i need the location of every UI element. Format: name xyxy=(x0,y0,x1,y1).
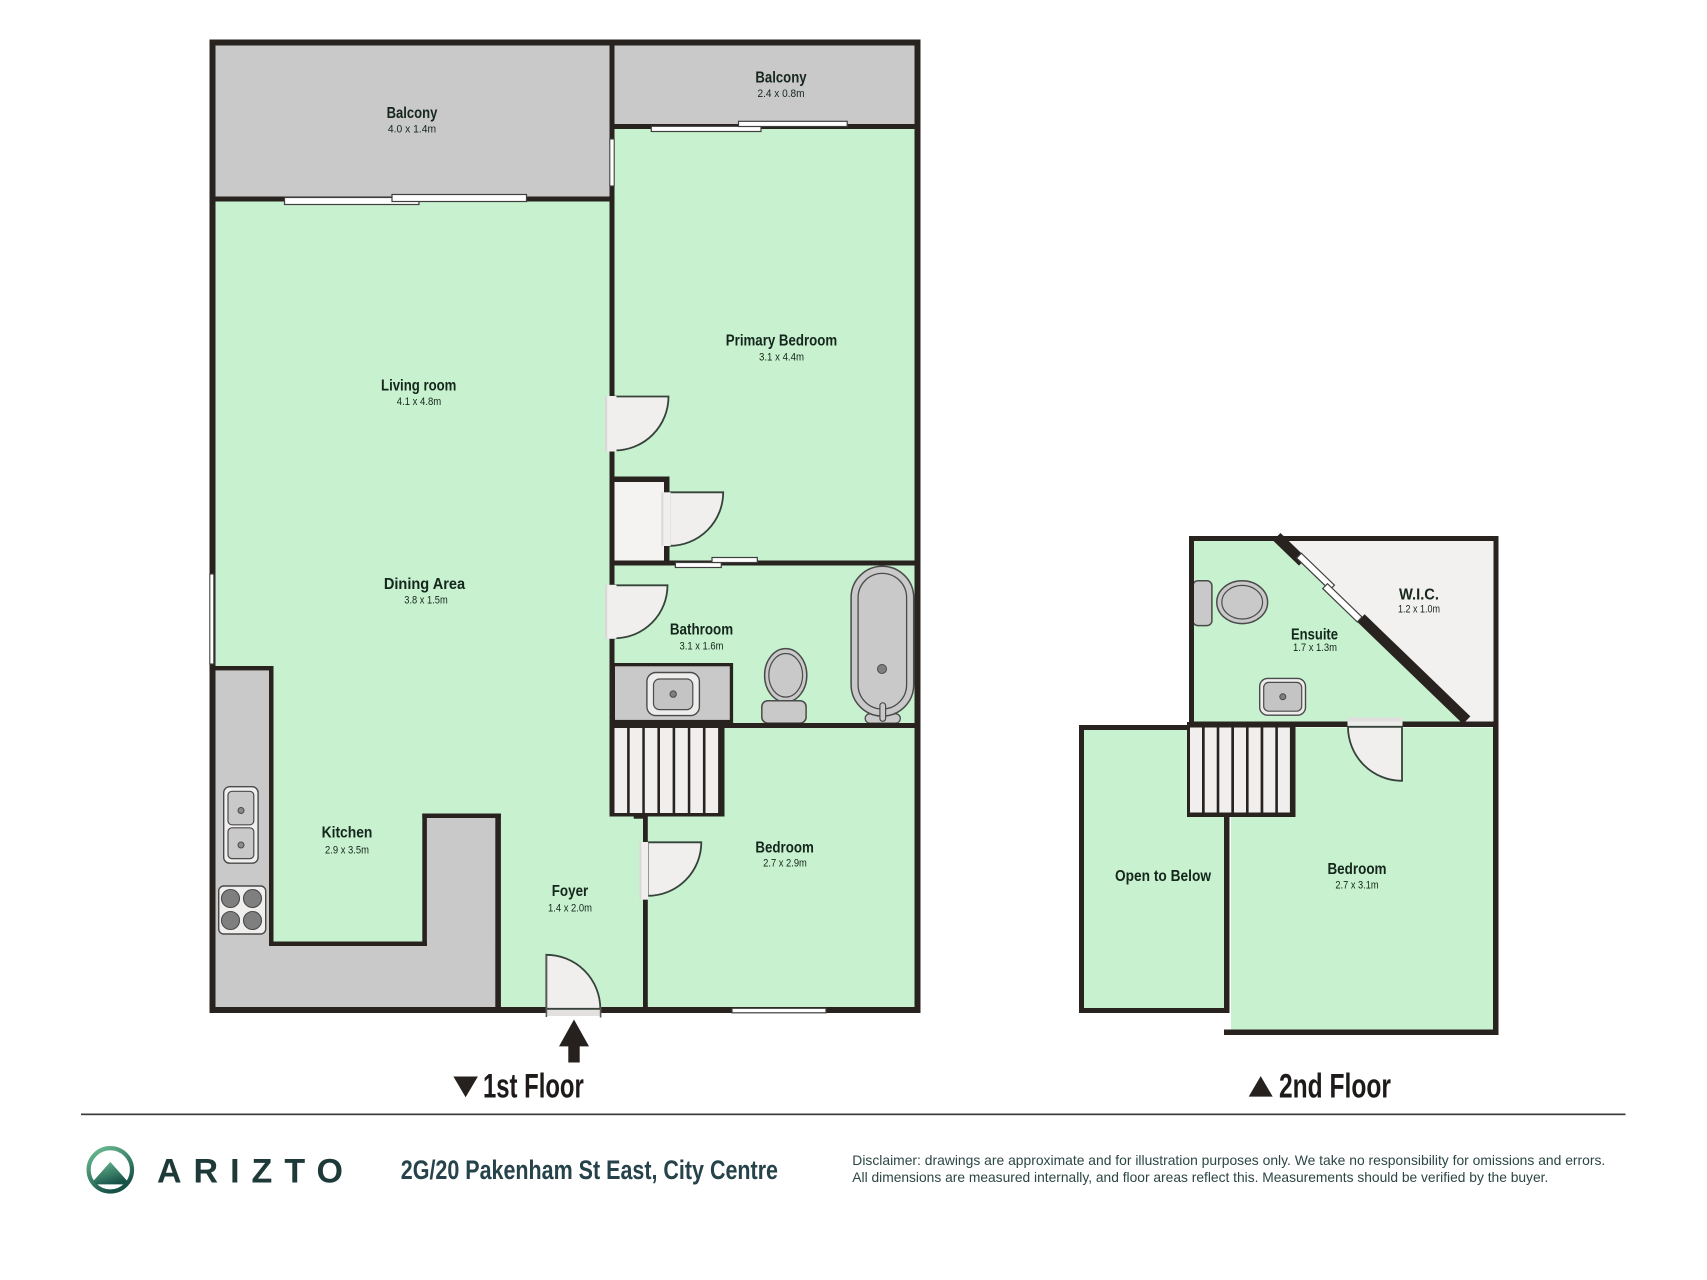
svg-text:4.1 x 4.8m: 4.1 x 4.8m xyxy=(397,396,441,408)
svg-text:2.7 x 3.1m: 2.7 x 3.1m xyxy=(1335,880,1378,892)
svg-text:2G/20 Pakenham St East, City C: 2G/20 Pakenham St East, City Centre xyxy=(401,1155,778,1185)
svg-text:Foyer: Foyer xyxy=(552,883,589,900)
svg-text:2.7 x 2.9m: 2.7 x 2.9m xyxy=(763,858,807,870)
svg-text:1.4 x 2.0m: 1.4 x 2.0m xyxy=(548,903,592,915)
svg-text:Primary Bedroom: Primary Bedroom xyxy=(726,333,837,350)
svg-text:4.0 x 1.4m: 4.0 x 1.4m xyxy=(388,124,436,136)
svg-text:2.4 x 0.8m: 2.4 x 0.8m xyxy=(758,88,805,100)
svg-text:Living room: Living room xyxy=(381,378,456,395)
svg-text:W.I.C.: W.I.C. xyxy=(1399,587,1439,604)
svg-text:All dimensions are measured in: All dimensions are measured internally, … xyxy=(852,1170,1548,1185)
svg-text:3.1 x 1.6m: 3.1 x 1.6m xyxy=(680,641,724,653)
svg-text:Disclaimer: drawings are appro: Disclaimer: drawings are approximate and… xyxy=(852,1153,1605,1168)
svg-text:Balcony: Balcony xyxy=(755,70,807,87)
svg-text:1.7 x 1.3m: 1.7 x 1.3m xyxy=(1293,642,1337,654)
svg-text:Bathroom: Bathroom xyxy=(670,622,733,639)
svg-text:Open to Below: Open to Below xyxy=(1115,868,1212,885)
svg-text:Kitchen: Kitchen xyxy=(322,825,373,842)
svg-text:2.9 x 3.5m: 2.9 x 3.5m xyxy=(325,845,369,857)
svg-text:ARIZTO: ARIZTO xyxy=(157,1153,355,1191)
svg-text:1.2 x 1.0m: 1.2 x 1.0m xyxy=(1398,604,1440,616)
svg-text:3.1 x 4.4m: 3.1 x 4.4m xyxy=(759,352,804,364)
svg-text:2nd Floor: 2nd Floor xyxy=(1279,1068,1391,1106)
svg-text:Balcony: Balcony xyxy=(387,105,438,122)
svg-text:Bedroom: Bedroom xyxy=(1327,861,1386,878)
svg-text:Ensuite: Ensuite xyxy=(1291,627,1338,644)
svg-text:Dining Area: Dining Area xyxy=(384,576,466,593)
svg-text:3.8 x 1.5m: 3.8 x 1.5m xyxy=(404,595,447,607)
svg-text:1st Floor: 1st Floor xyxy=(483,1068,584,1106)
svg-text:Bedroom: Bedroom xyxy=(755,840,814,857)
